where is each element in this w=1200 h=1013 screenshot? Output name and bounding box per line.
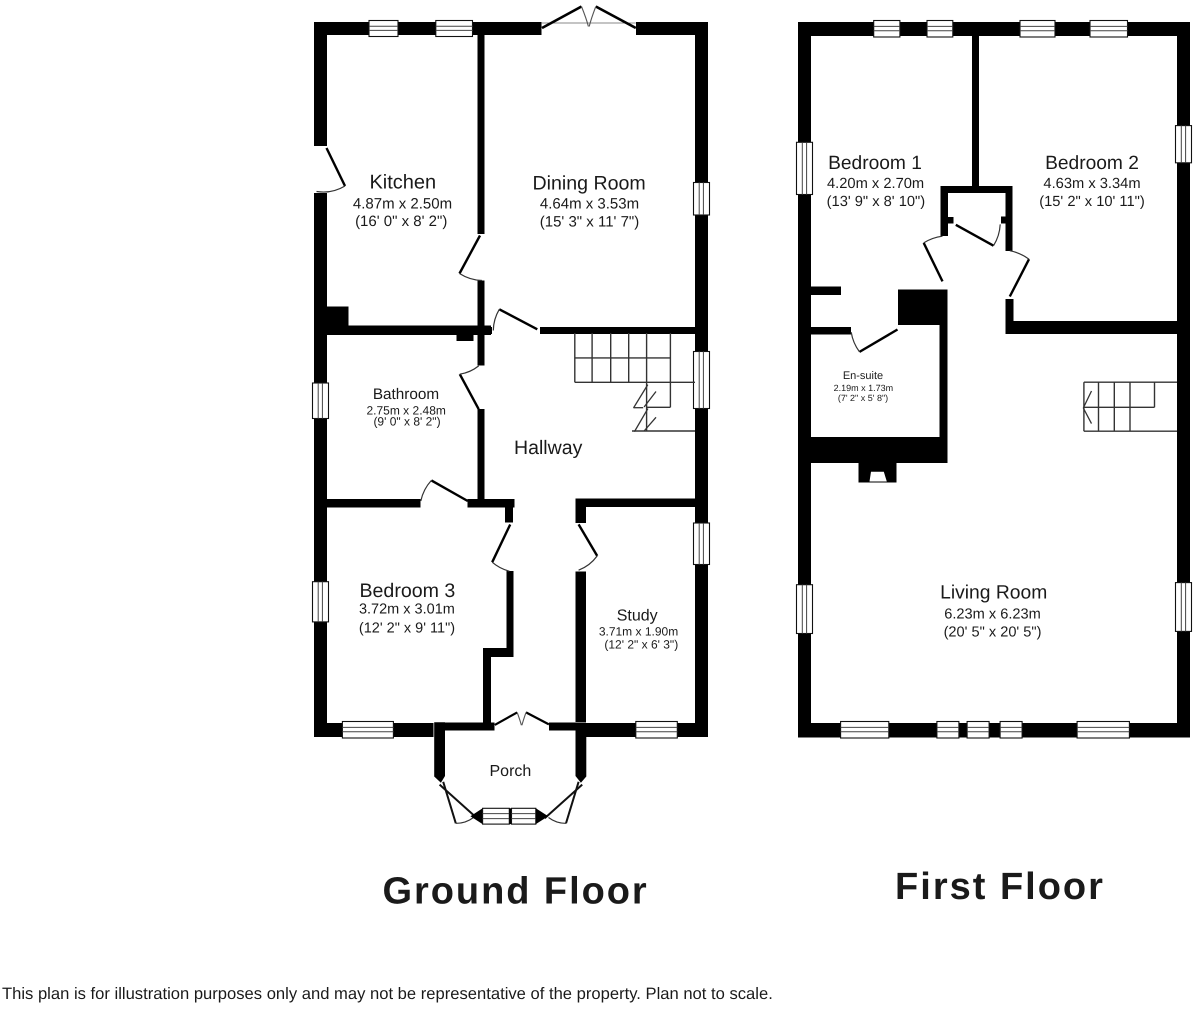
svg-text:3.71m x 1.90m: 3.71m x 1.90m xyxy=(599,625,678,639)
svg-text:(7' 2" x 5' 8"): (7' 2" x 5' 8") xyxy=(838,393,888,403)
svg-text:6.23m x 6.23m: 6.23m x 6.23m xyxy=(944,607,1041,623)
svg-text:This plan is for illustration: This plan is for illustration purposes o… xyxy=(2,984,773,1003)
svg-text:4.63m x 3.34m: 4.63m x 3.34m xyxy=(1043,176,1140,192)
svg-text:First Floor: First Floor xyxy=(895,866,1105,908)
svg-text:3.72m x 3.01m: 3.72m x 3.01m xyxy=(359,602,455,618)
svg-text:4.64m x 3.53m: 4.64m x 3.53m xyxy=(540,196,639,213)
svg-text:Bathroom: Bathroom xyxy=(373,386,439,403)
svg-text:4.20m x 2.70m: 4.20m x 2.70m xyxy=(827,176,924,192)
svg-text:(15' 3" x 11' 7"): (15' 3" x 11' 7") xyxy=(540,213,639,230)
svg-text:Hallway: Hallway xyxy=(514,437,583,459)
svg-text:(12' 2" x 9' 11"): (12' 2" x 9' 11") xyxy=(359,620,455,636)
svg-text:(20' 5" x 20' 5"): (20' 5" x 20' 5") xyxy=(944,624,1042,640)
svg-text:4.87m x 2.50m: 4.87m x 2.50m xyxy=(353,196,452,213)
svg-text:(12' 2" x 6' 3"): (12' 2" x 6' 3") xyxy=(604,638,678,652)
svg-text:Bedroom 1: Bedroom 1 xyxy=(828,153,922,174)
svg-text:Bedroom 2: Bedroom 2 xyxy=(1045,153,1139,174)
svg-text:Porch: Porch xyxy=(490,763,532,780)
svg-text:Study: Study xyxy=(617,608,658,625)
svg-text:Bedroom 3: Bedroom 3 xyxy=(359,580,455,602)
svg-text:Living Room: Living Room xyxy=(940,583,1047,604)
svg-text:(16' 0" x 8' 2"): (16' 0" x 8' 2") xyxy=(355,213,447,230)
svg-text:Dining Room: Dining Room xyxy=(532,172,645,194)
svg-text:Ground Floor: Ground Floor xyxy=(383,871,649,913)
svg-text:(15' 2" x 10' 11"): (15' 2" x 10' 11") xyxy=(1039,194,1145,210)
svg-text:En-suite: En-suite xyxy=(843,370,883,382)
svg-text:(13' 9" x 8' 10"): (13' 9" x 8' 10") xyxy=(827,194,926,210)
svg-text:Kitchen: Kitchen xyxy=(369,172,436,194)
svg-text:2.19m x 1.73m: 2.19m x 1.73m xyxy=(834,383,894,393)
svg-text:(9' 0" x 8' 2"): (9' 0" x 8' 2") xyxy=(373,415,440,429)
